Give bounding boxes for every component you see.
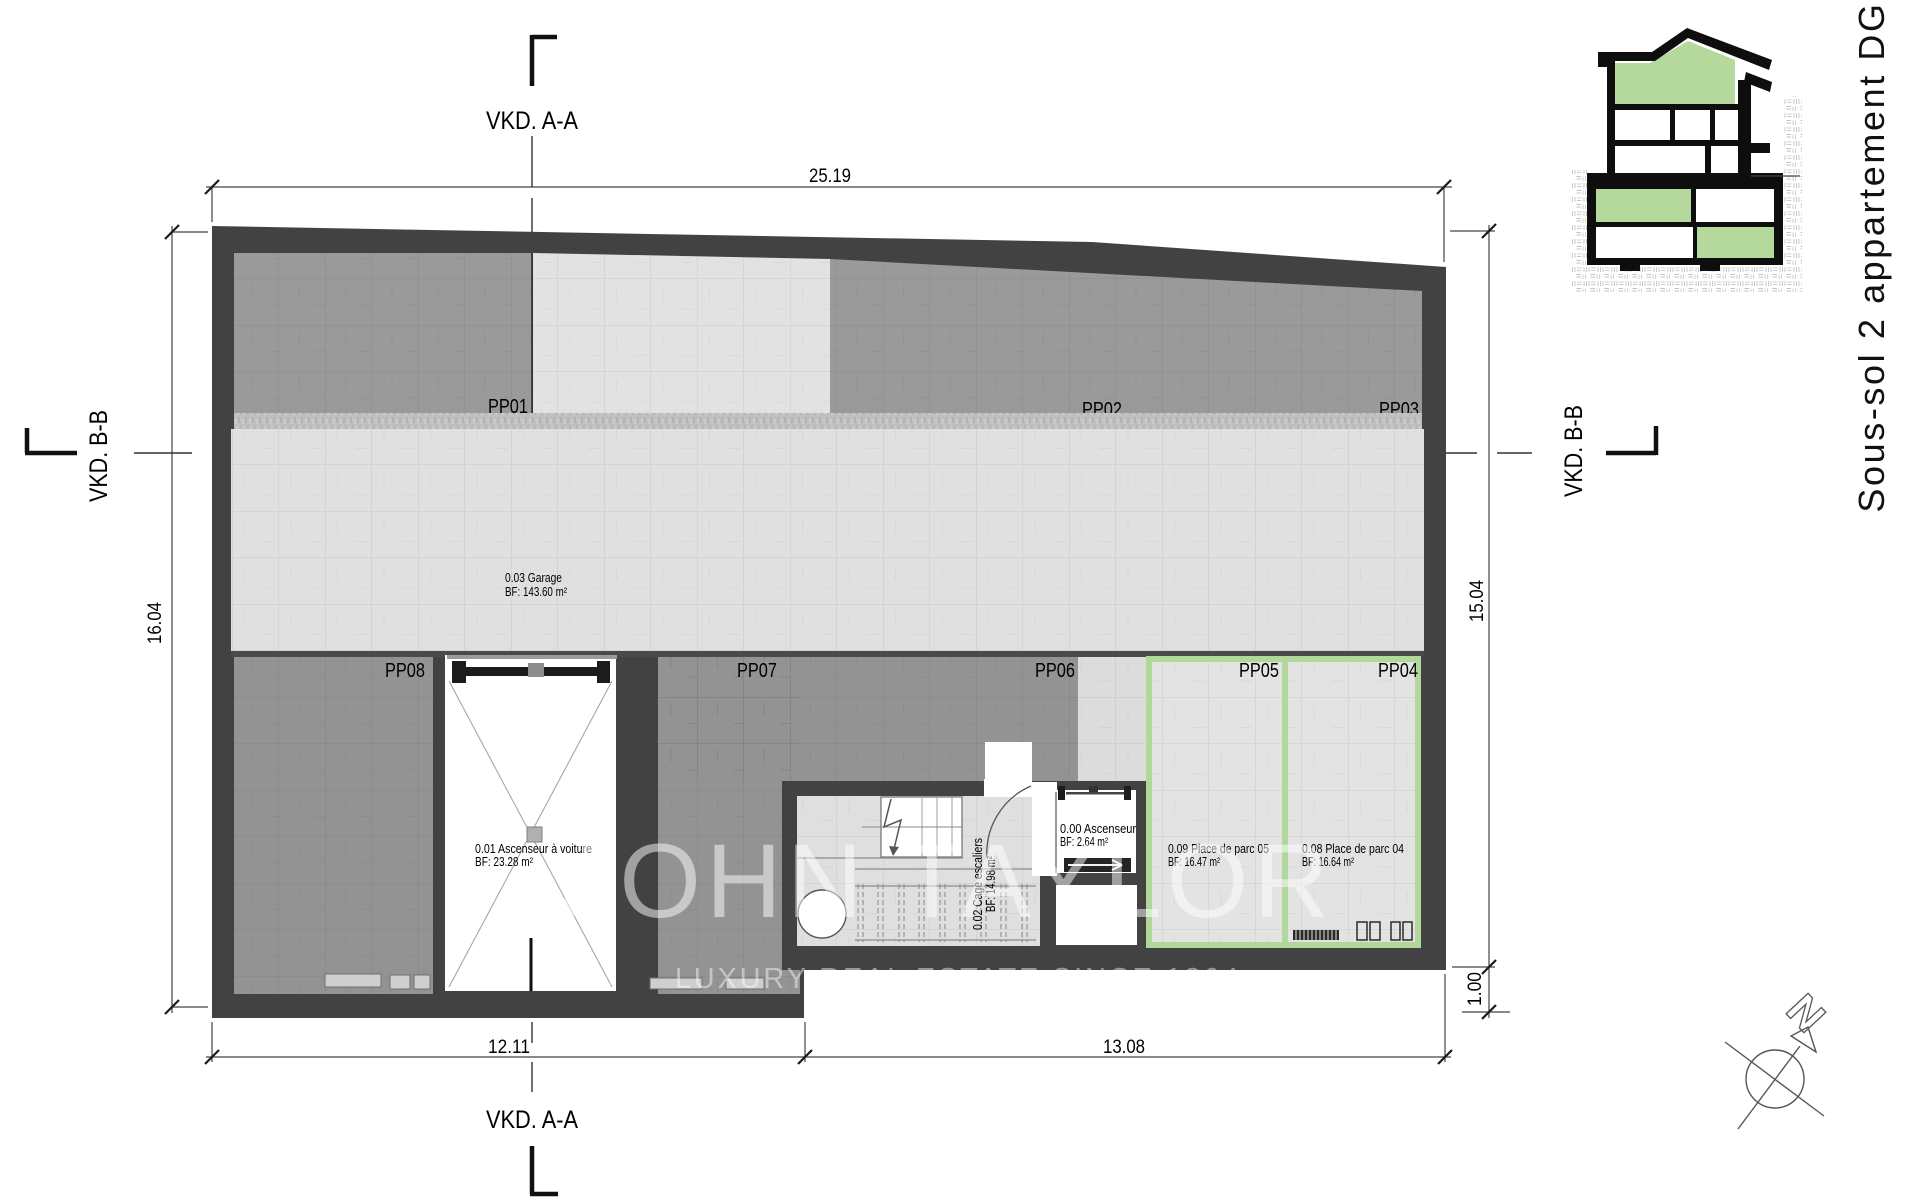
svg-text:13.08: 13.08 (1103, 1037, 1145, 1058)
svg-text:BF: 143.60 m²: BF: 143.60 m² (505, 585, 567, 599)
svg-text:VKD. B-B: VKD. B-B (1560, 405, 1588, 497)
svg-text:PP07: PP07 (737, 660, 777, 682)
svg-text:25.19: 25.19 (809, 166, 851, 187)
svg-text:JOHN TAYLOR: JOHN TAYLOR (562, 823, 1335, 940)
svg-text:VKD. A-A: VKD. A-A (486, 107, 578, 135)
svg-text:Sous-sol 2 appartement DG: Sous-sol 2 appartement DG (1851, 1, 1892, 512)
svg-text:LUXURY REAL ESTATE SINCE 1864: LUXURY REAL ESTATE SINCE 1864 (675, 963, 1241, 995)
svg-text:PP05: PP05 (1239, 660, 1279, 682)
svg-text:0.03 Garage: 0.03 Garage (505, 571, 562, 585)
svg-text:1.00: 1.00 (1465, 972, 1486, 1006)
svg-text:PP04: PP04 (1378, 660, 1418, 682)
svg-text:12.11: 12.11 (488, 1037, 530, 1058)
svg-text:15.04: 15.04 (1467, 580, 1488, 622)
svg-text:BF: 23.28 m²: BF: 23.28 m² (475, 855, 533, 869)
svg-text:16.04: 16.04 (145, 602, 166, 644)
svg-text:VKD. B-B: VKD. B-B (85, 410, 113, 502)
svg-text:VKD. A-A: VKD. A-A (486, 1106, 578, 1134)
svg-text:PP08: PP08 (385, 660, 425, 682)
svg-text:PP06: PP06 (1035, 660, 1075, 682)
